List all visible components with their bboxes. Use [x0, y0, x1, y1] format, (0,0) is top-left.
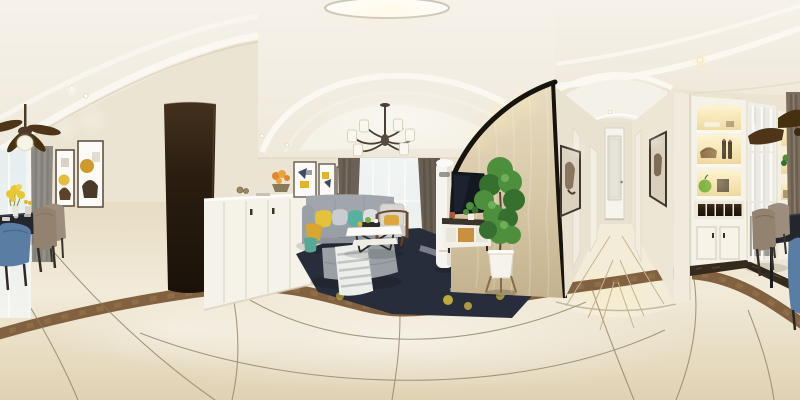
red-decor — [450, 212, 455, 218]
hallway-door — [603, 126, 626, 222]
door-handle — [620, 181, 623, 184]
wood-drawer — [458, 228, 474, 242]
armchair-yellow-pillow — [384, 215, 399, 226]
panorama-scene — [0, 0, 800, 400]
framed-artwork-dining-1 — [56, 150, 74, 206]
cabinet-handle — [272, 208, 275, 214]
book-stack — [254, 189, 270, 193]
gray-pillow — [332, 209, 348, 226]
teal-throw — [304, 237, 317, 252]
door-jamb — [635, 130, 641, 262]
cabinet-handle — [712, 233, 714, 238]
planter-rim — [488, 250, 514, 254]
cabinet-handle — [723, 233, 725, 238]
chandelier-rod — [384, 104, 386, 136]
door-jamb — [590, 146, 597, 252]
fan-downrod — [24, 104, 27, 128]
framed-artwork-living-2 — [319, 164, 335, 196]
white-planter — [489, 254, 513, 278]
ac-vent — [439, 172, 450, 177]
cabinet-handle — [250, 209, 253, 215]
framed-artwork-dining-2 — [78, 141, 103, 207]
green-apple-decor — [365, 217, 371, 223]
framed-artwork-living-1 — [294, 162, 316, 197]
fan-light-globe — [17, 136, 33, 151]
panorama-360-interior — [0, 0, 800, 400]
